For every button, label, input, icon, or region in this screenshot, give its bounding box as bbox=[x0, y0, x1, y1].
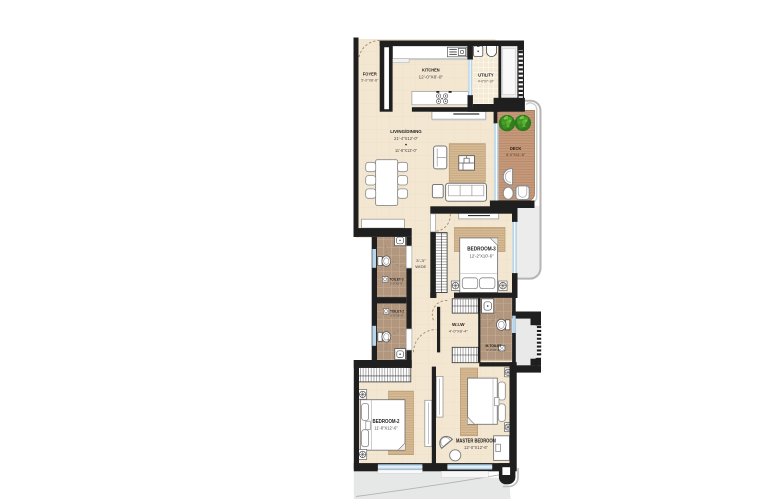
svg-text:WIDE: WIDE bbox=[415, 265, 427, 269]
svg-text:3'-3": 3'-3" bbox=[416, 259, 426, 263]
svg-text:5'-0"X8'-6": 5'-0"X8'-6" bbox=[361, 78, 379, 83]
svg-text:DECK: DECK bbox=[510, 146, 522, 151]
svg-text:BEDROOM-2: BEDROOM-2 bbox=[373, 419, 400, 425]
svg-text:6'-0"X11'-6": 6'-0"X11'-6" bbox=[506, 153, 526, 157]
svg-text:LIVING/DINING: LIVING/DINING bbox=[390, 129, 422, 135]
svg-text:FOYER: FOYER bbox=[363, 72, 378, 77]
svg-text:12'-2"X10'-6": 12'-2"X10'-6" bbox=[470, 253, 495, 258]
svg-text:W.I.W: W.I.W bbox=[452, 322, 465, 327]
svg-text:4'-0"X7'-10": 4'-0"X7'-10" bbox=[478, 80, 495, 84]
svg-text:12'-0"X12'-6": 12'-0"X12'-6" bbox=[464, 445, 489, 450]
svg-text:21'-4"X12'-0": 21'-4"X12'-0" bbox=[394, 136, 419, 141]
svg-text:11'-8"X13'-0": 11'-8"X13'-0" bbox=[395, 148, 418, 153]
svg-text:MASTER BEDROOM: MASTER BEDROOM bbox=[456, 439, 496, 445]
svg-text:UTILITY: UTILITY bbox=[478, 73, 494, 78]
svg-text:4'-0"X8'-4": 4'-0"X8'-4" bbox=[449, 328, 469, 333]
svg-text:12'-0"X8'-0": 12'-0"X8'-0" bbox=[419, 75, 444, 80]
svg-text:11'-8"X12'-6": 11'-8"X12'-6" bbox=[374, 425, 398, 430]
svg-text:5'-0"X8'-0": 5'-0"X8'-0" bbox=[487, 348, 501, 352]
svg-text:KITCHEN: KITCHEN bbox=[422, 68, 440, 74]
svg-text:5'-0"X8'-0": 5'-0"X8'-0" bbox=[390, 282, 403, 286]
svg-text:5'-0"X8'-0": 5'-0"X8'-0" bbox=[391, 314, 404, 318]
svg-text:BEDROOM-3: BEDROOM-3 bbox=[467, 246, 496, 252]
